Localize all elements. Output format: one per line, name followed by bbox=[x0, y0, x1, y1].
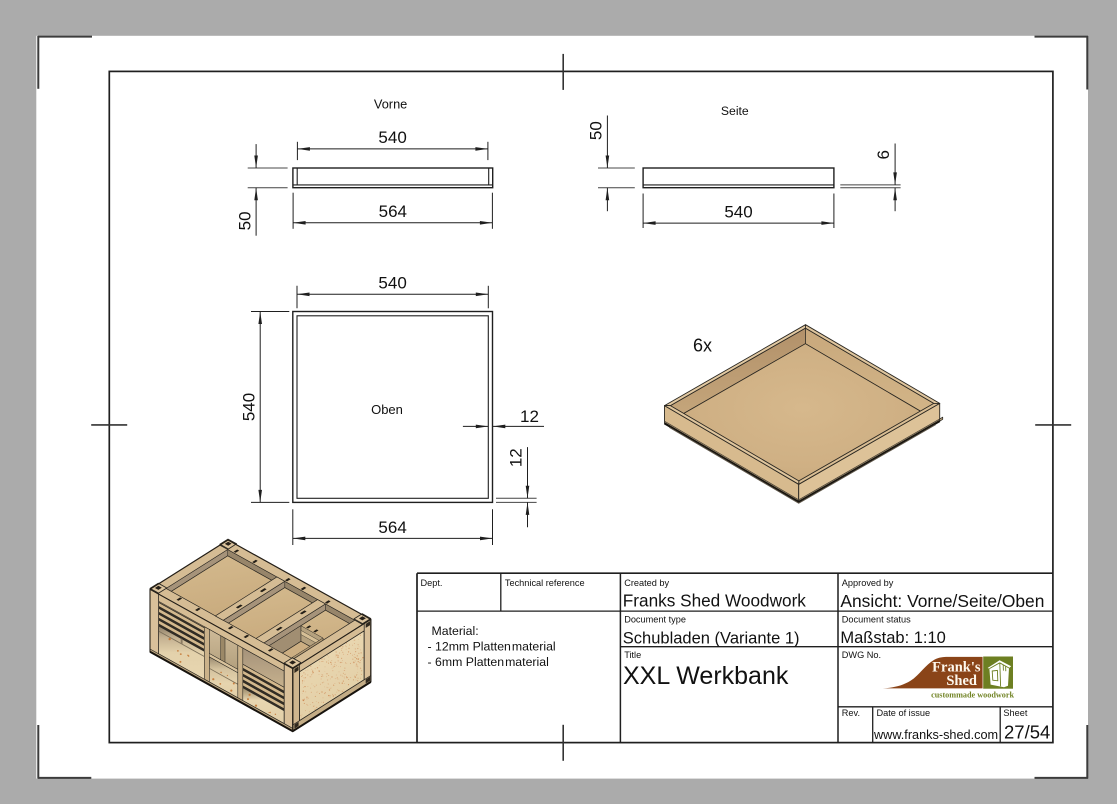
svg-text:custommade woodwork: custommade woodwork bbox=[931, 691, 1014, 700]
svg-text:Oben: Oben bbox=[371, 402, 403, 417]
svg-text:Created by: Created by bbox=[624, 578, 669, 588]
svg-text:Technical reference: Technical reference bbox=[505, 578, 585, 588]
svg-text:540: 540 bbox=[239, 393, 258, 421]
svg-text:Sheet: Sheet bbox=[1003, 708, 1027, 718]
svg-text:Maßstab: 1:10: Maßstab: 1:10 bbox=[840, 629, 945, 647]
svg-text:12: 12 bbox=[507, 448, 526, 467]
svg-text:540: 540 bbox=[724, 203, 752, 222]
svg-text:Approved by: Approved by bbox=[842, 578, 894, 588]
svg-text:50: 50 bbox=[235, 211, 254, 230]
svg-text:Material:: Material: bbox=[432, 624, 479, 638]
svg-text:- 12mm Platten material: - 12mm Platten material bbox=[428, 640, 556, 654]
svg-text:- 6mm Platten material: - 6mm Platten material bbox=[428, 655, 549, 669]
svg-text:564: 564 bbox=[378, 518, 406, 537]
svg-text:12: 12 bbox=[520, 407, 539, 426]
svg-text:564: 564 bbox=[379, 202, 407, 221]
svg-text:Ansicht: Vorne/Seite/Oben: Ansicht: Vorne/Seite/Oben bbox=[840, 591, 1044, 611]
svg-text:Document type: Document type bbox=[624, 615, 686, 625]
svg-text:Seite: Seite bbox=[721, 104, 749, 118]
svg-text:Schubladen (Variante 1): Schubladen (Variante 1) bbox=[623, 630, 800, 648]
svg-text:540: 540 bbox=[378, 274, 406, 293]
svg-text:Franks Shed Woodwork: Franks Shed Woodwork bbox=[623, 591, 807, 611]
svg-text:6x: 6x bbox=[693, 336, 712, 356]
svg-text:Date of issue: Date of issue bbox=[877, 708, 931, 718]
svg-text:Rev.: Rev. bbox=[842, 708, 860, 718]
svg-text:Document status: Document status bbox=[842, 615, 911, 625]
svg-text:27/54: 27/54 bbox=[1004, 722, 1050, 743]
svg-text:Shed: Shed bbox=[946, 673, 977, 689]
svg-text:DWG No.: DWG No. bbox=[842, 650, 881, 660]
svg-text:Vorne: Vorne bbox=[374, 97, 407, 112]
svg-text:Title: Title bbox=[624, 650, 641, 660]
svg-text:XXL Werkbank: XXL Werkbank bbox=[623, 662, 789, 690]
svg-text:www.franks-shed.com: www.franks-shed.com bbox=[873, 728, 998, 742]
svg-text:540: 540 bbox=[378, 128, 406, 147]
svg-text:50: 50 bbox=[586, 121, 605, 140]
svg-text:Dept.: Dept. bbox=[421, 578, 443, 588]
svg-text:6: 6 bbox=[874, 150, 893, 159]
